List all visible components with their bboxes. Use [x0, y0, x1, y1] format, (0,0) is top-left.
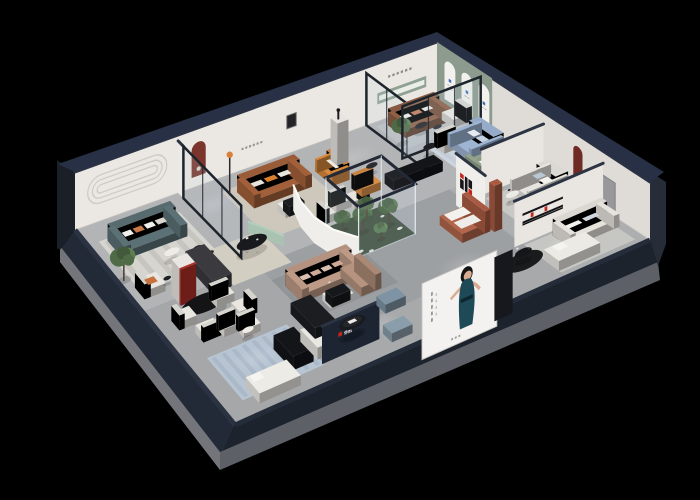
display-column — [331, 118, 338, 166]
storefront-poster — [431, 305, 433, 309]
armchair-white-4 — [434, 131, 437, 148]
bench-rust-back — [485, 209, 490, 233]
sofa-white-6 — [614, 214, 619, 229]
sofa-cognac-leather — [306, 174, 312, 189]
sofa-cognac-leather — [254, 193, 260, 208]
display-column — [337, 119, 348, 165]
potted-plant-1 — [123, 254, 135, 266]
sofa-blue-fabric — [448, 133, 451, 148]
sectional-blush-chaise-back — [375, 272, 381, 291]
storefront-poster — [436, 293, 437, 296]
sofa-teal — [180, 223, 187, 239]
showroom-3d-render: 华凯华凯 — [0, 0, 700, 500]
storefront-poster — [431, 292, 433, 296]
armchair-white-1 — [145, 282, 151, 300]
arc-floor-lamp — [227, 152, 233, 158]
huakai-logo-mark — [465, 176, 468, 193]
storefront-poster — [436, 300, 437, 303]
storefront-dark-panel — [494, 249, 512, 321]
dining-chair-white — [201, 325, 203, 343]
dining-chair-white — [179, 313, 184, 330]
barstool-white — [216, 313, 218, 331]
sofa-white-5a — [510, 179, 512, 194]
arch-frame-rust — [494, 183, 502, 232]
barstool-white — [236, 314, 239, 332]
storefront-poster — [436, 306, 437, 309]
wall-art-frame — [287, 113, 296, 129]
storefront-dark-panel — [494, 249, 512, 321]
storefront-poster — [436, 313, 437, 316]
storefront-poster — [431, 318, 433, 322]
showroom-stage: 华凯华凯 — [0, 0, 700, 500]
dining-chair-white — [209, 284, 212, 302]
storefront-poster — [431, 298, 433, 302]
sculpture-figure — [337, 108, 341, 112]
display-shelf-red-edge — [180, 268, 181, 306]
wall-art-frame — [287, 113, 296, 129]
chaise-orange — [315, 158, 317, 173]
storefront-poster — [431, 311, 433, 315]
